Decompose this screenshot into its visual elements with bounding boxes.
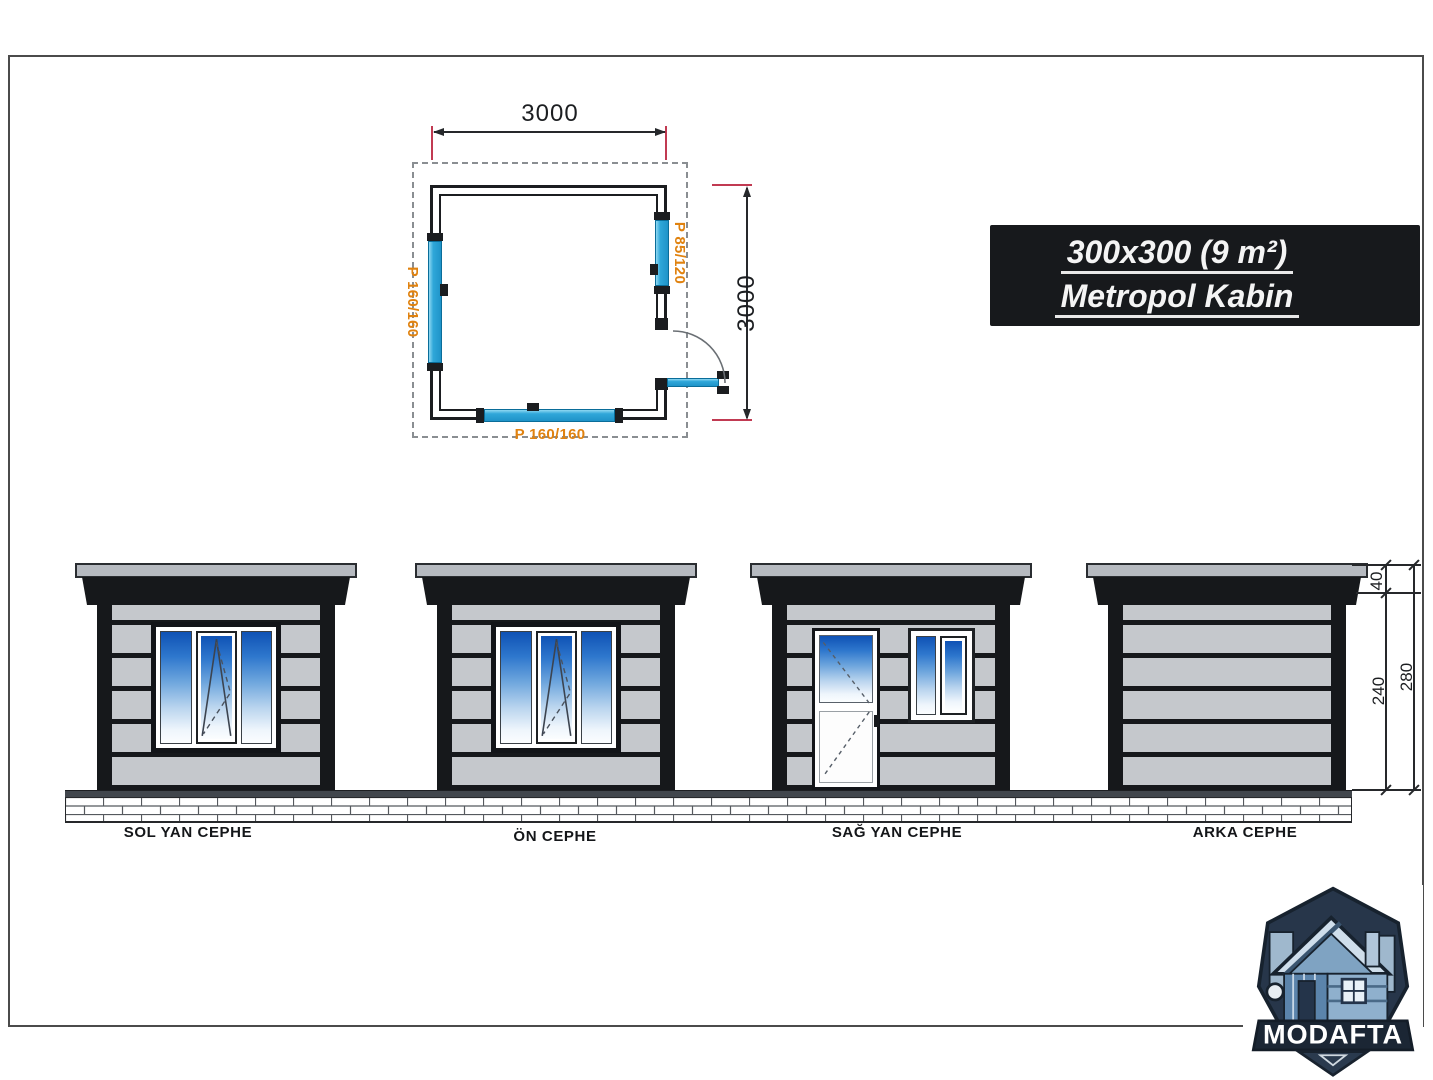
- plan-window-cap: [476, 408, 484, 423]
- double-window: [908, 628, 975, 723]
- tilt-turn-symbol: [201, 636, 232, 739]
- corner-post-right: [320, 605, 335, 790]
- brick-pattern: [65, 797, 1352, 824]
- roof-cap: [75, 563, 357, 578]
- brick-foundation: [65, 790, 1352, 823]
- plan-window-cap: [654, 286, 670, 294]
- elevation-label-on: ÖN CEPHE: [455, 828, 655, 845]
- window-operable-sash: [196, 631, 237, 744]
- plan-window-bottom: [484, 409, 615, 422]
- plan-window-left: [428, 241, 442, 363]
- plan-window-cap: [654, 212, 670, 220]
- plan-width-dim: 3000: [470, 102, 630, 126]
- wall-siding: [1108, 605, 1346, 790]
- door-handle: [874, 715, 879, 727]
- elevation-label-sol-yan: SOL YAN CEPHE: [88, 824, 288, 841]
- elevation-label-arka: ARKA CEPHE: [1145, 824, 1345, 841]
- plan-height-dim: 3000: [735, 223, 759, 383]
- window-glass: [241, 631, 273, 744]
- plan-window-cap: [427, 363, 443, 371]
- elevation-sag-yan: [750, 563, 1032, 790]
- corner-post-right: [995, 605, 1010, 790]
- corner-post-right: [1331, 605, 1346, 790]
- plan-window-hinge-mark: [440, 284, 448, 296]
- door-swing-arc: [668, 326, 730, 388]
- elevation-arka: [1086, 563, 1368, 790]
- plan-window-right-label: P 85/120: [672, 198, 688, 308]
- roof-fascia: [757, 577, 1025, 605]
- dim-240-label: 240: [1371, 661, 1387, 721]
- plan-wall-inner: [439, 194, 658, 411]
- window-operable-sash: [940, 636, 967, 715]
- corner-post-left: [437, 605, 452, 790]
- roof-fascia: [422, 577, 690, 605]
- dim-280-label: 280: [1399, 647, 1415, 707]
- logo-text: MODAFTA: [1263, 1018, 1403, 1049]
- foundation-cap: [65, 790, 1352, 797]
- elevation-on: [415, 563, 697, 790]
- window-glass: [916, 636, 936, 715]
- roof-cap: [415, 563, 697, 578]
- window-glass: [160, 631, 192, 744]
- plan-window-left-label: P 160/160: [405, 237, 421, 367]
- dim-arrow-left: [433, 128, 444, 136]
- tilt-turn-symbol: [541, 636, 572, 739]
- plan-window-bottom-label: P 160/160: [470, 425, 630, 443]
- triple-window: [491, 622, 621, 753]
- corner-post-right: [660, 605, 675, 790]
- logo-graphic: MODAFTA: [1243, 885, 1423, 1077]
- dim-arrow-up: [743, 186, 751, 197]
- elevation-sol-yan: [75, 563, 357, 790]
- plan-window-cap: [427, 233, 443, 241]
- plan-window-right: [655, 220, 669, 286]
- modafta-logo: MODAFTA: [1243, 885, 1423, 1077]
- sheet-border: [8, 55, 1424, 1027]
- entry-door: [812, 628, 880, 790]
- triple-window: [151, 622, 281, 753]
- corner-post-left: [97, 605, 112, 790]
- elevation-label-sag-yan: SAĞ YAN CEPHE: [797, 824, 997, 841]
- roof-cap: [1086, 563, 1368, 578]
- plan-door-opening: [654, 330, 669, 378]
- roof-cap: [750, 563, 1032, 578]
- dim-40-label: 40: [1369, 561, 1385, 601]
- plan-window-hinge-mark: [527, 403, 539, 411]
- corner-post-left: [772, 605, 787, 790]
- plan-window-hinge-mark: [650, 264, 658, 275]
- roof-fascia: [82, 577, 350, 605]
- dim-arrow-down: [743, 409, 751, 420]
- plan-window-cap: [615, 408, 623, 423]
- drawing-sheet: 3000 3000 P 160/160 P 85/120 P 160/160: [0, 0, 1433, 1080]
- dim-arrow-right: [655, 128, 666, 136]
- plan-dim-line-top: [434, 131, 665, 133]
- window-operable-sash: [536, 631, 577, 744]
- corner-post-left: [1108, 605, 1123, 790]
- window-glass: [945, 641, 962, 710]
- window-glass: [500, 631, 532, 744]
- badge-size-text: 300x300 (9 m²): [1061, 234, 1294, 274]
- door-opening-symbol: [819, 635, 873, 783]
- roof-fascia: [1093, 577, 1361, 605]
- window-glass: [581, 631, 613, 744]
- plan-door-jamb: [655, 318, 668, 330]
- title-badge: 300x300 (9 m²) Metropol Kabin: [990, 225, 1420, 326]
- extension-line-fascia: [1356, 592, 1421, 594]
- badge-model-text: Metropol Kabin: [1055, 278, 1300, 318]
